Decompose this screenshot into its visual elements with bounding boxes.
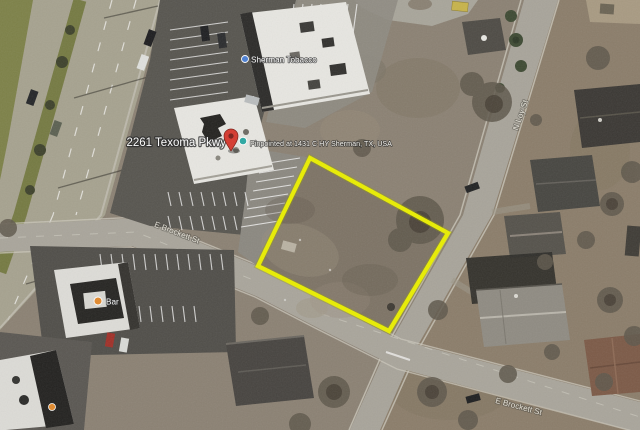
photo-grain-overlay [0, 0, 640, 430]
aerial-imagery: E Brockett St N Loy St E Brockett St She… [0, 0, 640, 430]
satellite-map-canvas[interactable]: E Brockett St N Loy St E Brockett St She… [0, 0, 640, 430]
